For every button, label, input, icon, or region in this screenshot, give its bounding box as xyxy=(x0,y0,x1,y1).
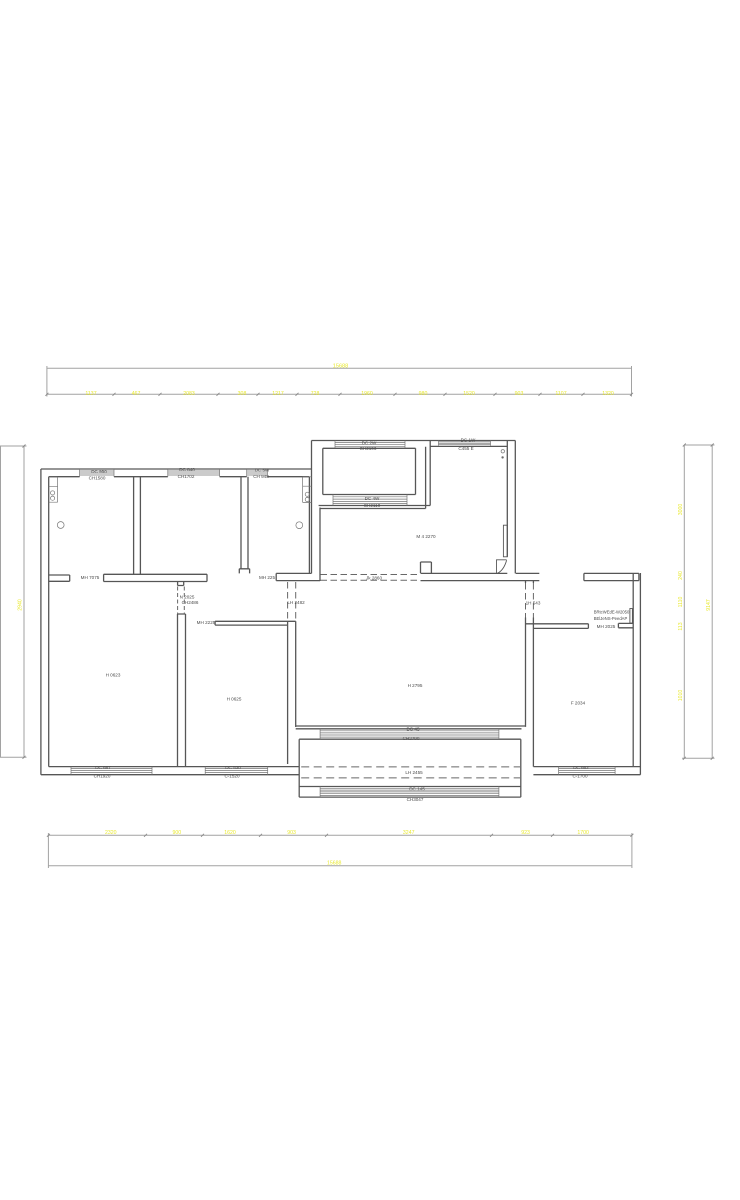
svg-text:CH3047: CH3047 xyxy=(407,797,424,802)
svg-text:1137: 1137 xyxy=(85,391,96,397)
svg-text:240: 240 xyxy=(678,571,684,580)
svg-text:467: 467 xyxy=(132,391,141,397)
svg-text:C455 E: C455 E xyxy=(458,446,473,451)
svg-text:980: 980 xyxy=(419,391,428,397)
svg-text:DC 45: DC 45 xyxy=(406,727,419,732)
svg-text:DC 662: DC 662 xyxy=(573,765,589,770)
svg-text:CH1920: CH1920 xyxy=(94,773,111,778)
svg-text:H 0623: H 0623 xyxy=(106,672,121,677)
svg-text:CH2110: CH2110 xyxy=(364,503,381,508)
svg-text:CH1580: CH1580 xyxy=(89,476,106,481)
svg-text:1110: 1110 xyxy=(678,597,684,608)
svg-text:2320: 2320 xyxy=(105,830,117,836)
svg-text:9147: 9147 xyxy=(706,599,712,611)
svg-text:1700: 1700 xyxy=(577,830,589,836)
svg-text:15688: 15688 xyxy=(327,860,342,866)
svg-text:1320: 1320 xyxy=(602,391,614,397)
svg-text:MH 225: MH 225 xyxy=(259,575,276,580)
svg-text:DC 530: DC 530 xyxy=(225,765,241,770)
svg-text:Jk 2860: Jk 2860 xyxy=(366,575,383,580)
svg-text:DC 840: DC 840 xyxy=(179,467,195,472)
svg-text:C-1520: C-1520 xyxy=(224,773,240,778)
svg-text:903: 903 xyxy=(515,391,524,397)
svg-text:1960: 1960 xyxy=(361,391,373,397)
svg-text:923: 923 xyxy=(521,830,530,836)
svg-text:BElJeNS-PeedAP: BElJeNS-PeedAP xyxy=(594,616,628,621)
svg-text:LH 2455: LH 2455 xyxy=(405,770,423,775)
svg-text:CH2196: CH2196 xyxy=(360,446,377,451)
svg-text:2940: 2940 xyxy=(18,599,24,611)
svg-text:DC 687: DC 687 xyxy=(95,765,111,770)
svg-text:CH 948: CH 948 xyxy=(253,474,269,479)
svg-text:903: 903 xyxy=(287,830,296,836)
svg-text:BRtcWEdE-W2050: BRtcWEdE-W2050 xyxy=(594,610,630,615)
svg-text:3247: 3247 xyxy=(403,830,415,836)
svg-text:CH1702: CH1702 xyxy=(178,474,195,479)
svg-text:CH2790: CH2790 xyxy=(403,736,420,741)
svg-text:F 2034: F 2034 xyxy=(571,701,586,706)
svg-text:1107: 1107 xyxy=(555,391,566,397)
svg-text:1H 543: 1H 543 xyxy=(526,601,541,606)
svg-text:2083: 2083 xyxy=(183,391,195,397)
svg-text:728: 728 xyxy=(311,391,320,397)
svg-text:LH 2482: LH 2482 xyxy=(287,600,305,605)
svg-text:C-1700: C-1700 xyxy=(572,773,588,778)
svg-text:1620: 1620 xyxy=(224,830,236,836)
svg-text:DC 2W: DC 2W xyxy=(362,441,377,446)
svg-text:M 4 2270: M 4 2270 xyxy=(416,534,436,539)
svg-text:N 2025: N 2025 xyxy=(180,595,195,600)
svg-text:900: 900 xyxy=(172,830,181,836)
svg-text:H 2795: H 2795 xyxy=(408,683,423,688)
svg-text:H 0625: H 0625 xyxy=(227,696,242,701)
svg-text:DC 5W: DC 5W xyxy=(255,467,270,472)
svg-text:1010: 1010 xyxy=(678,690,684,702)
svg-text:3000: 3000 xyxy=(678,504,684,516)
svg-text:CH2486: CH2486 xyxy=(182,600,199,605)
svg-text:DC 4W: DC 4W xyxy=(365,496,380,501)
svg-text:1520: 1520 xyxy=(463,391,475,397)
svg-text:15688: 15688 xyxy=(333,364,349,370)
svg-text:MH 7075: MH 7075 xyxy=(81,575,100,580)
svg-text:MH 2225: MH 2225 xyxy=(197,620,216,625)
svg-text:MH 2025: MH 2025 xyxy=(597,624,616,629)
svg-text:DC 1W: DC 1W xyxy=(461,437,476,442)
svg-text:DC 950: DC 950 xyxy=(91,469,107,474)
svg-text:113: 113 xyxy=(678,622,684,630)
svg-text:1217: 1217 xyxy=(272,391,284,397)
svg-text:308: 308 xyxy=(238,391,247,397)
svg-text:DC 145: DC 145 xyxy=(409,787,425,792)
